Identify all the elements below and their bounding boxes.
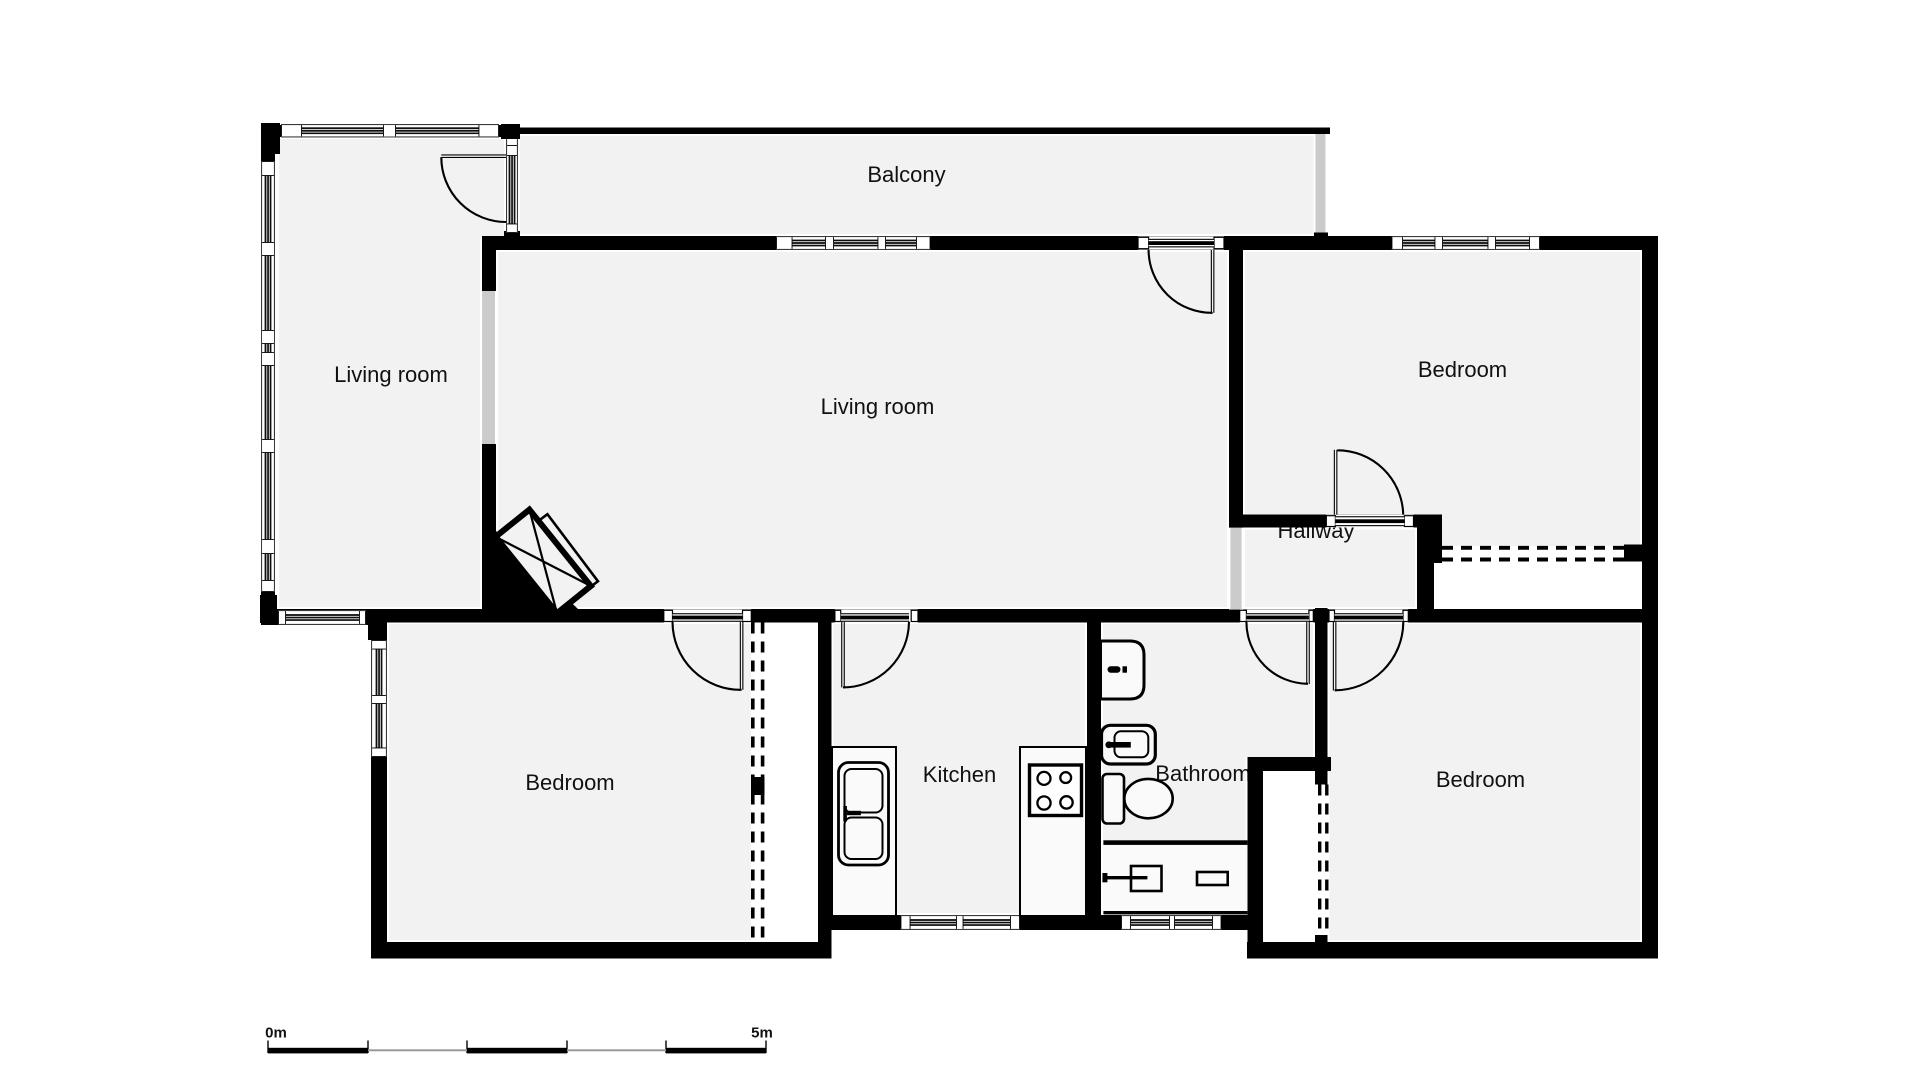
svg-text:0m: 0m — [265, 1025, 287, 1042]
svg-text:5m: 5m — [751, 1025, 773, 1042]
svg-text:Living room: Living room — [821, 394, 935, 419]
svg-text:Bathroom: Bathroom — [1155, 761, 1250, 786]
svg-text:Balcony: Balcony — [867, 162, 945, 187]
svg-text:Kitchen: Kitchen — [923, 762, 996, 787]
svg-text:Bedroom: Bedroom — [1436, 767, 1525, 792]
svg-text:Bedroom: Bedroom — [1418, 357, 1507, 382]
svg-text:Living room: Living room — [334, 362, 448, 387]
svg-text:Bedroom: Bedroom — [525, 770, 614, 795]
